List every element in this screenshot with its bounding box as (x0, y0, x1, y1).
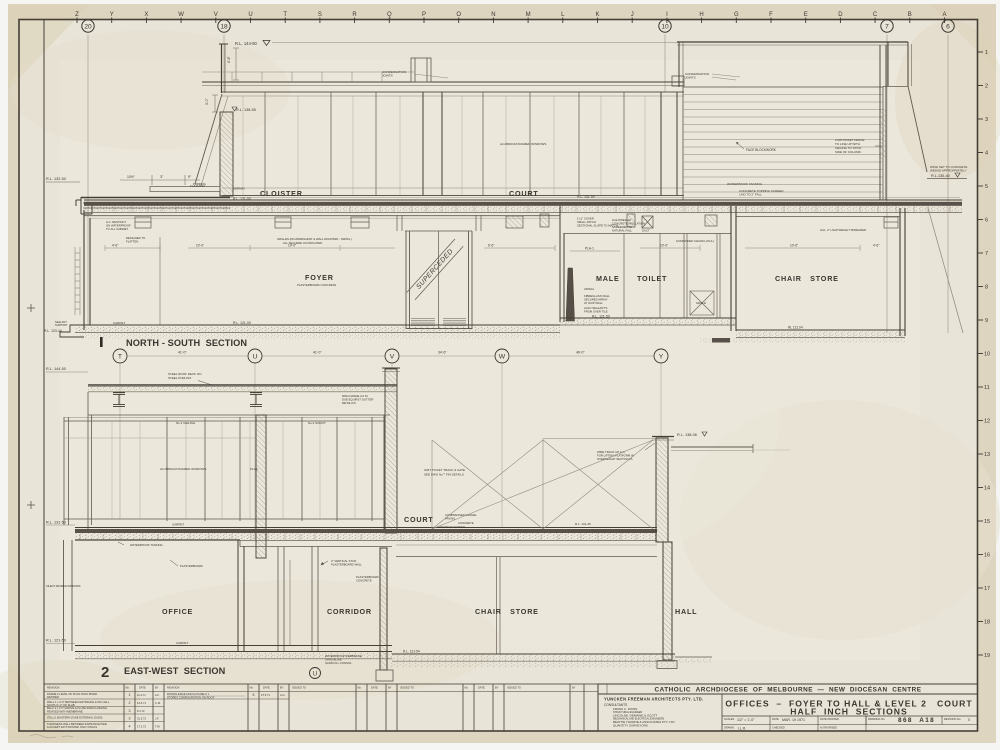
svg-text:9.4.72: 9.4.72 (137, 709, 145, 713)
svg-text:10½": 10½" (127, 175, 136, 179)
svg-text:R.L. 138-06: R.L. 138-06 (677, 433, 697, 437)
svg-text:CHAIR STORE: CHAIR STORE (775, 274, 839, 283)
svg-text:5: 5 (985, 184, 988, 190)
svg-text:RETIRED: RETIRED (47, 695, 59, 699)
svg-text:CARPET: CARPET (113, 321, 125, 325)
svg-text:41'-0": 41'-0" (178, 351, 187, 355)
svg-text:LAID TO 2" FALL: LAID TO 2" FALL (739, 193, 762, 197)
svg-text:DATE: DATE (263, 686, 270, 690)
svg-text:U: U (313, 671, 317, 677)
svg-text:No: No (126, 686, 130, 690)
svg-text:SILENT FRAMED WINDOWS: SILENT FRAMED WINDOWS (46, 584, 81, 588)
svg-text:1: 1 (129, 693, 131, 697)
svg-text:10'-6": 10'-6" (790, 244, 798, 248)
svg-text:31.5.72: 31.5.72 (137, 717, 146, 721)
svg-text:CONCRETE: CONCRETE (356, 579, 372, 583)
svg-text:G: G (734, 12, 739, 18)
svg-text:Y: Y (110, 12, 114, 18)
svg-text:10'-0": 10'-0" (288, 244, 296, 248)
svg-text:SUPPORT: SUPPORT (55, 323, 68, 327)
svg-text:METALICS: METALICS (342, 401, 356, 405)
svg-text:BALC 2 x 1½" GROVE & FLUSH: BALC 2 x 1½" GROVE & FLUSH END FLASHING (47, 706, 107, 710)
svg-text:4: 4 (129, 725, 131, 729)
svg-text:SUSPENDED CEILING (PLA-): SUSPENDED CEILING (PLA-) (676, 239, 714, 243)
svg-text:2: 2 (985, 84, 988, 90)
svg-text:K: K (595, 12, 599, 18)
svg-text:R.L. 121-00: R.L. 121-00 (233, 321, 251, 325)
svg-text:REVISED WITH MEMBRANE: REVISED WITH MEMBRANE (47, 710, 83, 714)
svg-text:A.F.: A.F. (155, 693, 160, 697)
svg-text:DATE: DATE (772, 717, 779, 721)
svg-text:No: No (465, 686, 469, 690)
svg-text:T: T (283, 12, 287, 18)
svg-text:BY: BY (388, 686, 392, 690)
svg-text:19: 19 (984, 653, 990, 659)
svg-text:R.L. 144-50: R.L. 144-50 (46, 367, 66, 371)
svg-text:17.2.72: 17.2.72 (137, 725, 146, 729)
svg-text:R.L. 131-50: R.L. 131-50 (46, 521, 66, 525)
svg-text:13: 13 (984, 452, 990, 458)
svg-text:10'-0": 10'-0" (660, 244, 668, 248)
svg-text:U: U (248, 12, 252, 18)
svg-text:T.W.: T.W. (155, 725, 160, 729)
svg-text:STEEL PURLINS: STEEL PURLINS (168, 376, 191, 380)
svg-text:6: 6 (946, 23, 950, 30)
svg-text:SIDE OF COLUMN: SIDE OF COLUMN (835, 150, 861, 154)
svg-text:MAR. 19 1971: MAR. 19 1971 (782, 718, 805, 722)
svg-text:FLATTEN: FLATTEN (126, 240, 138, 244)
svg-text:FROM OVER TILE: FROM OVER TILE (584, 310, 608, 314)
svg-text:CARPET: CARPET (176, 641, 188, 645)
svg-text:R.L. 144-50: R.L. 144-50 (235, 41, 258, 46)
svg-text:N: N (491, 12, 495, 18)
svg-text:A.G.: A.G. (280, 693, 286, 697)
svg-text:DATE PRINTED: DATE PRINTED (820, 717, 839, 721)
svg-text:J.F.: J.F. (155, 717, 159, 721)
svg-text:20: 20 (84, 23, 92, 30)
svg-text:DATE: DATE (139, 686, 146, 690)
svg-text:R.L. 132-50: R.L. 132-50 (46, 177, 66, 181)
svg-text:10'-0": 10'-0" (196, 244, 204, 248)
svg-text:PLAS.: PLAS. (250, 467, 259, 471)
svg-text:PLASTERBOARD WALL: PLASTERBOARD WALL (331, 563, 362, 567)
svg-text:41'-0": 41'-0" (313, 351, 322, 355)
svg-text:SAND FILL CONSOL.: SAND FILL CONSOL. (325, 661, 353, 665)
svg-text:& ACCEPT EXIT PAINTED ONLY: & ACCEPT EXIT PAINTED ONLY FINALS (47, 725, 97, 729)
svg-text:18: 18 (220, 23, 228, 30)
svg-text:3: 3 (129, 717, 131, 721)
svg-text:FLASHING: FLASHING (190, 184, 206, 188)
svg-text:COURT: COURT (509, 189, 539, 198)
svg-text:14: 14 (984, 486, 990, 492)
svg-text:CARPET: CARPET (172, 523, 184, 527)
svg-text:O: O (456, 12, 461, 18)
svg-text:NORTH - SOUTH SECTION: NORTH - SOUTH SECTION (126, 338, 247, 348)
svg-text:AT WUP WALL: AT WUP WALL (584, 301, 603, 305)
svg-text:CHECKED: CHECKED (772, 726, 785, 730)
svg-text:NATURAL FALL: NATURAL FALL (612, 229, 632, 233)
svg-text:STILLS (EASTERN ZONE EXTERN: STILLS (EASTERN ZONE EXTERNAL DADS) (47, 716, 103, 720)
svg-text:15: 15 (984, 519, 990, 525)
svg-text:HALL: HALL (675, 607, 697, 616)
svg-text:DRAWN: DRAWN (724, 726, 734, 730)
svg-text:2: 2 (129, 701, 131, 705)
svg-text:Z: Z (75, 12, 79, 18)
svg-text:2: 2 (101, 664, 109, 681)
svg-text:REVISION No.: REVISION No. (944, 717, 961, 721)
svg-text:OFFICE: OFFICE (162, 607, 193, 616)
svg-text:4'-6": 4'-6" (112, 244, 118, 248)
svg-text:H: H (699, 12, 703, 18)
svg-text:PLASTERBOARD: PLASTERBOARD (180, 564, 203, 568)
svg-text:DATE: DATE (478, 686, 485, 690)
svg-text:U: U (253, 354, 258, 361)
svg-text:CHAIR STORE: CHAIR STORE (475, 607, 539, 616)
svg-text:ISSUED TO: ISSUED TO (507, 686, 521, 690)
svg-text:Y: Y (659, 354, 664, 361)
svg-text:C: C (873, 12, 878, 18)
svg-text:A: A (942, 12, 946, 18)
svg-text:9: 9 (985, 318, 988, 324)
svg-text:AUTHORISED: AUTHORISED (820, 726, 837, 730)
svg-text:GAL. 2" LIGHTWEIGHT SPREADER: GAL. 2" LIGHTWEIGHT SPREADER (820, 228, 866, 232)
svg-text:JOINTS: JOINTS (382, 74, 393, 78)
svg-text:CATHOLIC ARCHDIOCESE OF MEL: CATHOLIC ARCHDIOCESE OF MELBOURNE — NEW … (655, 685, 922, 694)
svg-text:ISSUED TO: ISSUED TO (292, 686, 306, 690)
svg-text:TO ALL CABINET: TO ALL CABINET (106, 227, 129, 231)
svg-text:F: F (769, 12, 773, 18)
svg-text:Q: Q (387, 12, 392, 18)
svg-text:DRAWING No.: DRAWING No. (868, 717, 885, 721)
svg-text:SEE DWG No′′′′ FIN DETAILS: SEE DWG No′′′′ FIN DETAILS (424, 473, 464, 477)
svg-text:BY: BY (495, 686, 499, 690)
svg-text:FOYER: FOYER (305, 273, 334, 282)
svg-text:No.1 CEILING: No.1 CEILING (176, 421, 196, 425)
svg-text:R.L. 121-54: R.L. 121-54 (403, 650, 420, 654)
svg-text:46'-0": 46'-0" (576, 351, 585, 355)
svg-text:VERMIN: VERMIN (233, 187, 245, 191)
svg-text:R.L. 131-45: R.L. 131-45 (575, 522, 591, 526)
svg-text:868 A18: 868 A18 (898, 717, 935, 724)
svg-text:FACE BLOCKWORK: FACE BLOCKWORK (746, 148, 777, 152)
svg-text:URINAL: URINAL (584, 287, 595, 291)
svg-text:BY: BY (155, 686, 159, 690)
svg-text:BY: BY (572, 686, 576, 690)
svg-text:ISSUED TO: ISSUED TO (400, 686, 414, 690)
svg-text:V: V (390, 354, 395, 361)
svg-text:No: No (250, 686, 254, 690)
svg-text:QUANTITY SURVEYORS: QUANTITY SURVEYORS (613, 724, 648, 728)
svg-text:7: 7 (985, 251, 988, 257)
svg-text:R.L.130-40: R.L.130-40 (931, 174, 950, 178)
svg-text:12.6.71: 12.6.71 (137, 701, 146, 705)
svg-text:8: 8 (985, 285, 988, 291)
svg-text:GIRT TICKET TRACK & GATE: GIRT TICKET TRACK & GATE (424, 468, 465, 472)
svg-text:6'-8": 6'-8" (227, 55, 231, 63)
svg-text:S: S (318, 12, 322, 18)
svg-text:R.L. 138-55: R.L. 138-55 (236, 108, 256, 112)
svg-text:YUNCKEN FREEMAN ARCHITECTS PTY: YUNCKEN FREEMAN ARCHITECTS PTY. LTD. (604, 697, 704, 702)
svg-text:J: J (631, 12, 634, 18)
svg-text:W: W (499, 354, 506, 361)
svg-text:R.L. 131-50: R.L. 131-50 (577, 195, 595, 199)
svg-text:WATERPROOF TANKING: WATERPROOF TANKING (727, 182, 763, 186)
svg-text:C.M.: C.M. (155, 701, 161, 705)
svg-text:10: 10 (661, 23, 669, 30)
svg-text:WATERPROOF TANKING: WATERPROOF TANKING (130, 543, 163, 547)
svg-text:D: D (838, 12, 843, 18)
svg-text:CORRIDOR: CORRIDOR (327, 607, 372, 616)
svg-text:DATE: DATE (371, 686, 378, 690)
svg-text:10: 10 (984, 352, 990, 358)
svg-text:E: E (804, 12, 808, 18)
svg-text:4'-6": 4'-6" (873, 244, 879, 248)
svg-text:JOINTS: JOINTS (685, 76, 696, 80)
svg-text:WEDGE APPROPRIATELY: WEDGE APPROPRIATELY (930, 169, 967, 173)
svg-text:MALE: MALE (596, 274, 620, 283)
svg-text:B: B (908, 12, 912, 18)
svg-text:3: 3 (985, 117, 988, 123)
svg-text:11.4.71: 11.4.71 (137, 693, 146, 697)
svg-text:34'-6": 34'-6" (438, 351, 447, 355)
svg-text:PLASTERBOARD CONCRETE: PLASTERBOARD CONCRETE (297, 283, 336, 287)
svg-text:27.5.71: 27.5.71 (261, 693, 270, 697)
svg-text:17: 17 (984, 586, 990, 592)
svg-text:5: 5 (968, 718, 970, 722)
svg-text:P: P (422, 12, 426, 18)
svg-text:GRILLE: GRILLE (696, 301, 706, 305)
svg-text:R.L. 121-50: R.L. 121-50 (46, 639, 66, 643)
svg-text:V: V (214, 12, 218, 18)
svg-text:BY: BY (280, 686, 284, 690)
svg-text:3: 3 (129, 709, 131, 713)
svg-text:X: X (144, 12, 148, 18)
svg-text:No.2 SOFFIT: No.2 SOFFIT (308, 421, 326, 425)
svg-text:REVISION: REVISION (167, 686, 180, 690)
svg-text:ALUMINIUM FRAMED WINDOWS: ALUMINIUM FRAMED WINDOWS (160, 467, 206, 471)
svg-text:HALF INCH SECTIONS: HALF INCH SECTIONS (790, 707, 907, 717)
svg-text:1: 1 (985, 50, 988, 56)
svg-text:R: R (352, 12, 357, 18)
svg-text:DUCT: DUCT (642, 229, 650, 233)
svg-text:COURT: COURT (404, 515, 434, 524)
svg-text:3'-0": 3'-0" (205, 97, 209, 105)
svg-text:SCALES: SCALES (724, 717, 735, 721)
svg-text:12: 12 (984, 419, 990, 425)
svg-text:11: 11 (984, 385, 990, 391)
svg-text:EAST-WEST SECTION: EAST-WEST SECTION (124, 666, 226, 676)
svg-text:6: 6 (985, 218, 988, 224)
svg-text:ALUMINIUM FRAMED WINDOWS: ALUMINIUM FRAMED WINDOWS (500, 142, 546, 146)
svg-text:R.L. 123-44: R.L. 123-44 (44, 329, 62, 333)
svg-text:No: No (358, 686, 362, 690)
svg-text:REVISION: REVISION (47, 686, 60, 690)
svg-text:CONCRETE SCREED: CONCRETE SCREED (437, 525, 465, 529)
svg-text:4: 4 (985, 151, 988, 157)
svg-text:ROOMS EDGE FASCIA PANELS 1: ROOMS EDGE FASCIA PANELS 1 (167, 692, 210, 696)
svg-text:TOILET: TOILET (637, 274, 667, 283)
svg-text:CLOISTER: CLOISTER (260, 189, 303, 198)
svg-text:7: 7 (885, 23, 889, 30)
svg-text:I.L.R.: I.L.R. (738, 727, 746, 731)
svg-text:5: 5 (253, 693, 255, 697)
svg-text:6'-6": 6'-6" (488, 244, 494, 248)
svg-text:RL 121.04: RL 121.04 (788, 326, 803, 330)
svg-text:T: T (118, 354, 122, 361)
svg-text:1/2" = 1'-0": 1/2" = 1'-0" (737, 718, 755, 722)
svg-text:16: 16 (984, 553, 990, 559)
svg-text:PLA-1: PLA-1 (585, 247, 594, 251)
svg-text:W: W (178, 12, 184, 18)
svg-text:18: 18 (984, 620, 990, 626)
svg-text:M: M (526, 12, 531, 18)
